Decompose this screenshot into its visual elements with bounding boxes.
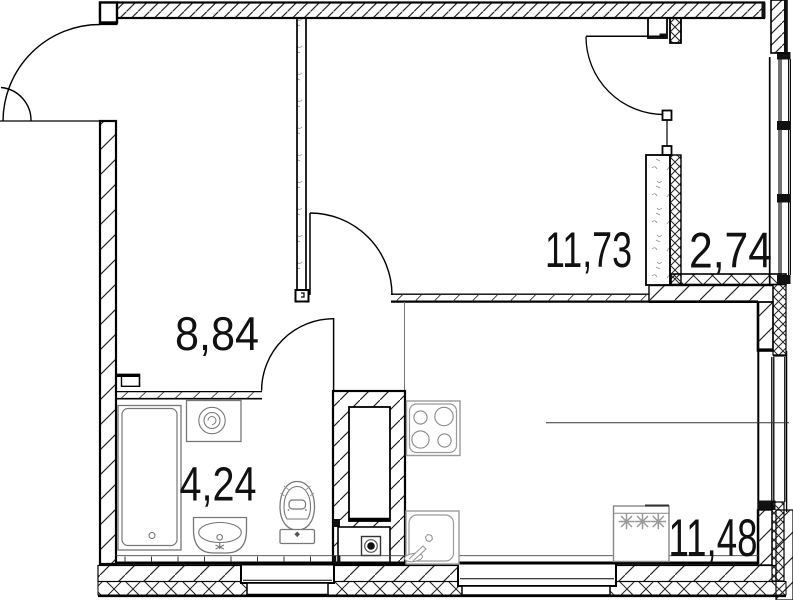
svg-text:11,73: 11,73	[545, 222, 632, 278]
svg-text:8,84: 8,84	[175, 307, 259, 360]
svg-text:11,48: 11,48	[669, 509, 758, 568]
svg-text:4,24: 4,24	[180, 459, 257, 512]
svg-text:2,74: 2,74	[689, 223, 772, 279]
